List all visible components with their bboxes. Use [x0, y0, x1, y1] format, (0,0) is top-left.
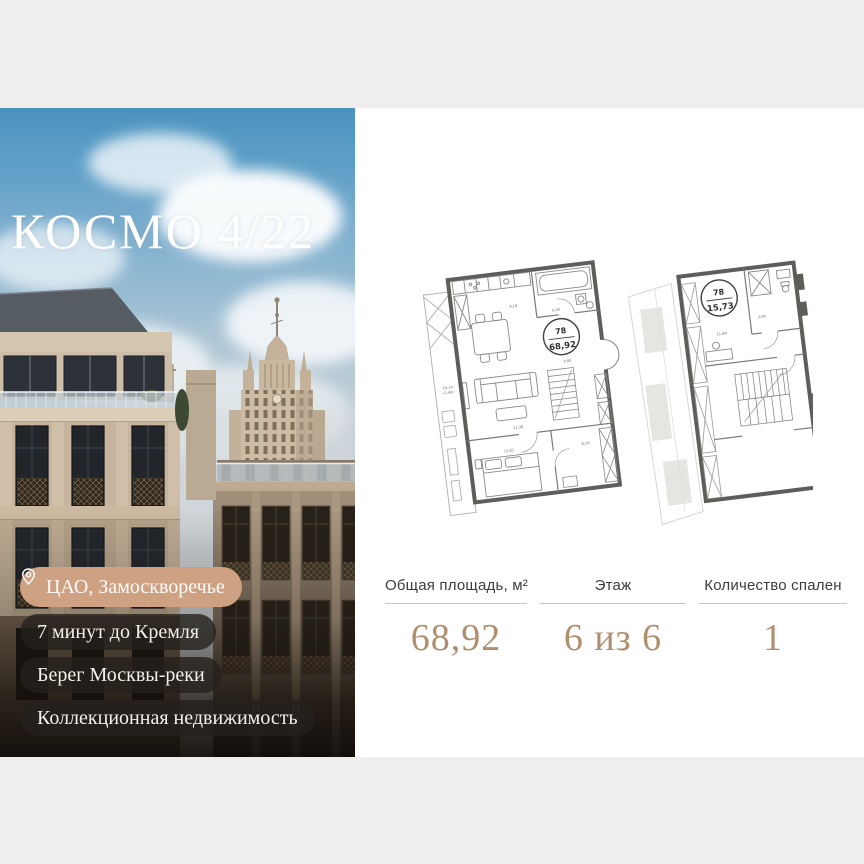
feature-badge-label: 7 минут до Кремля	[37, 621, 199, 644]
floor-plan-upper: 3,89 78 15,73 11,84	[627, 261, 813, 525]
feature-badge-river: Берег Москвы-реки	[20, 657, 222, 693]
spec-bedrooms: Количество спален 1	[699, 577, 847, 660]
feature-badge-label: Коллекционная недвижимость	[37, 707, 298, 730]
cypress-tree	[175, 389, 189, 431]
spec-label: Общая площадь, м²	[385, 577, 527, 594]
feature-badge-kremlin: 7 минут до Кремля	[20, 614, 216, 650]
project-title: КОСМО 4/22	[11, 202, 315, 260]
location-badge: ЦАО, Замоскворечье	[20, 567, 242, 607]
svg-text:78: 78	[712, 287, 725, 297]
badge-list: ЦАО, Замоскворечье 7 минут до Кремля Бер…	[20, 567, 315, 736]
floor-plan-main: 10,14 (3,44)	[422, 260, 636, 515]
floor-plans: 10,14 (3,44)	[418, 256, 813, 528]
divider	[540, 603, 686, 604]
spec-label: Этаж	[540, 577, 686, 594]
spec-value: 6 из 6	[540, 616, 686, 660]
info-panel: 10,14 (3,44)	[355, 108, 864, 757]
spec-value: 68,92	[385, 616, 527, 660]
building-photo: КОСМО 4/22 ЦАО, Замоскворечье 7 минут до…	[0, 108, 355, 757]
spec-floor: Этаж 6 из 6	[540, 577, 686, 660]
listing-card: КОСМО 4/22 ЦАО, Замоскворечье 7 минут до…	[0, 108, 864, 757]
feature-badge-label: Берег Москвы-реки	[37, 664, 205, 687]
svg-text:(3,44): (3,44)	[443, 390, 455, 395]
gap-building	[186, 370, 216, 500]
location-badge-label: ЦАО, Замоскворечье	[46, 576, 225, 599]
spec-row: Общая площадь, м² 68,92 Этаж 6 из 6 Коли…	[385, 577, 847, 660]
divider	[699, 603, 847, 604]
svg-text:78: 78	[555, 326, 568, 336]
spec-total-area: Общая площадь, м² 68,92	[385, 577, 527, 660]
spec-value: 1	[699, 616, 847, 660]
feature-badge-collection: Коллекционная недвижимость	[20, 700, 315, 736]
divider	[385, 603, 527, 604]
spec-label: Количество спален	[699, 577, 847, 594]
